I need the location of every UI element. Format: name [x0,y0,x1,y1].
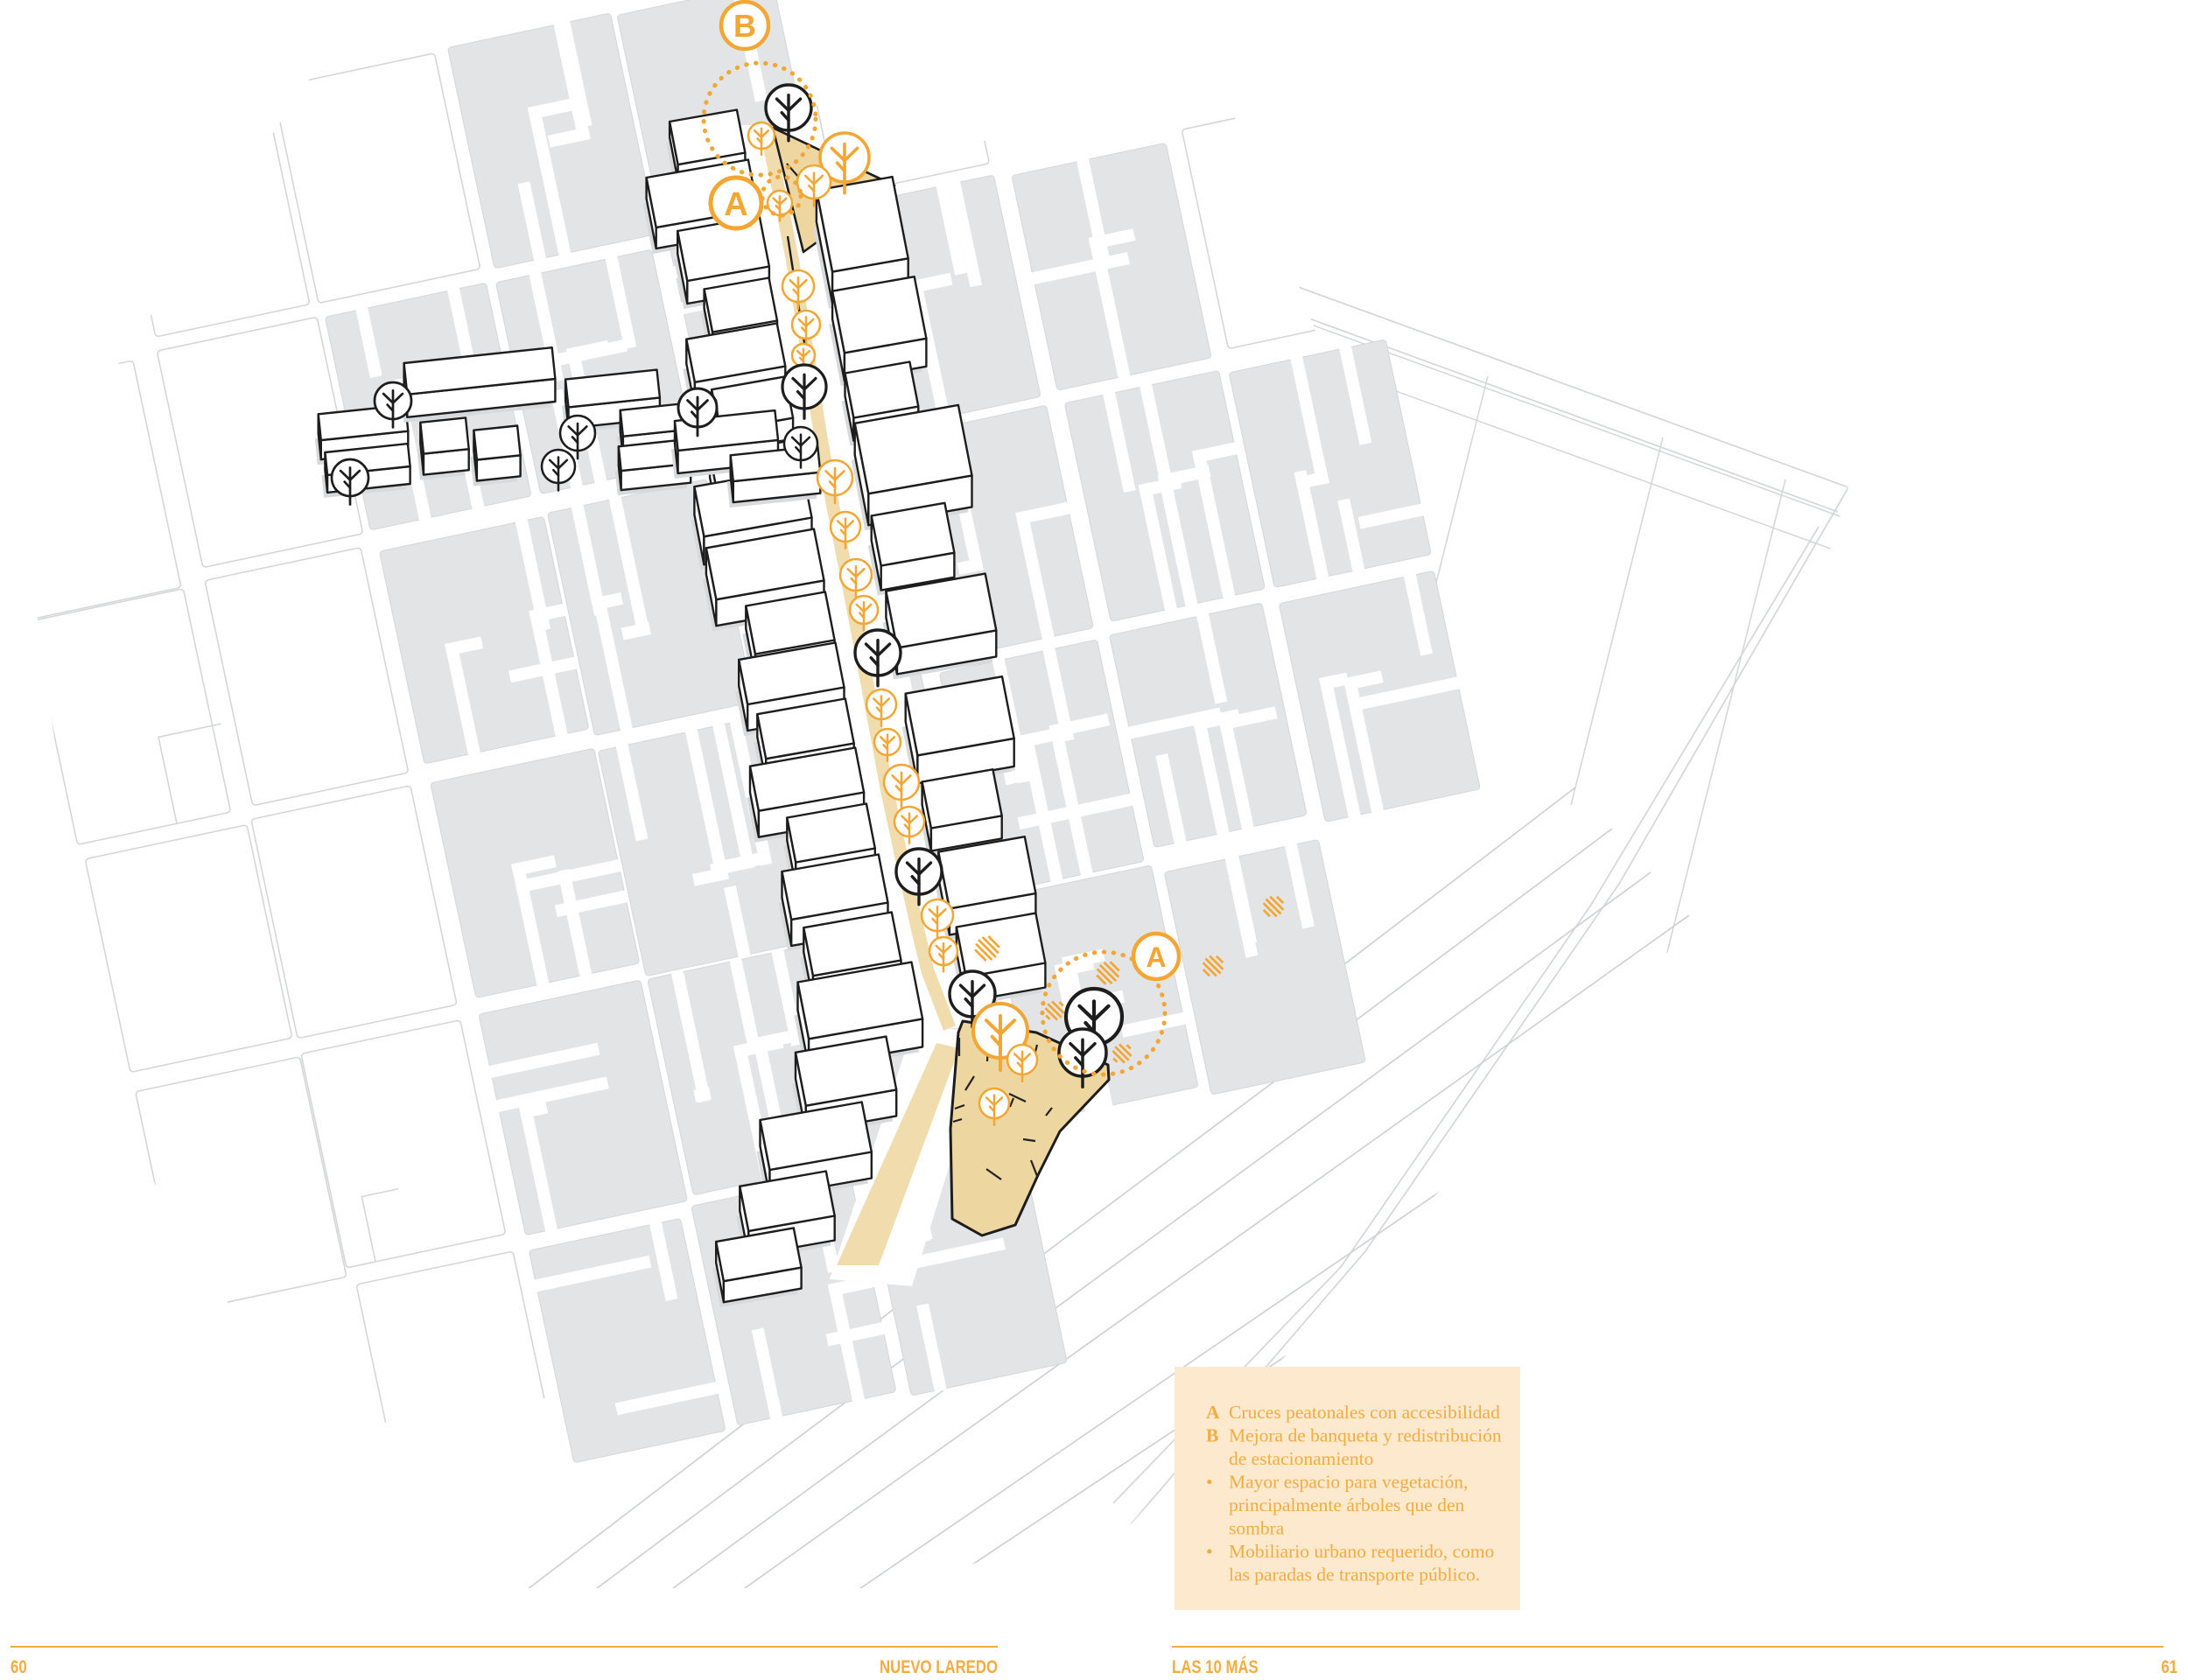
svg-text:•: • [1206,1541,1213,1562]
svg-text:Mejora de banqueta y redistrib: Mejora de banqueta y redistribución [1229,1425,1502,1446]
svg-text:60: 60 [11,1657,27,1677]
svg-text:principalmente árboles que den: principalmente árboles que den [1229,1494,1464,1515]
svg-text:sombra: sombra [1229,1518,1285,1539]
svg-text:A: A [1146,941,1166,973]
svg-text:A: A [1206,1402,1220,1423]
svg-text:Mobiliario urbano requerido, c: Mobiliario urbano requerido, como [1229,1541,1494,1562]
svg-text:•: • [1206,1472,1213,1493]
svg-text:Cruces peatonales con accesibi: Cruces peatonales con accesibilidad [1229,1402,1500,1423]
svg-text:de estacionamiento: de estacionamiento [1229,1448,1373,1469]
svg-text:61: 61 [2161,1657,2177,1677]
svg-text:Mayor espacio para vegetación,: Mayor espacio para vegetación, [1229,1472,1468,1493]
svg-text:las paradas de transporte públ: las paradas de transporte público. [1229,1564,1480,1585]
svg-text:NUEVO LAREDO: NUEVO LAREDO [880,1657,998,1677]
svg-text:A: A [724,186,747,223]
svg-text:B: B [733,8,756,44]
svg-text:B: B [1206,1425,1218,1446]
svg-text:LAS 10 MÁS: LAS 10 MÁS [1172,1656,1259,1678]
